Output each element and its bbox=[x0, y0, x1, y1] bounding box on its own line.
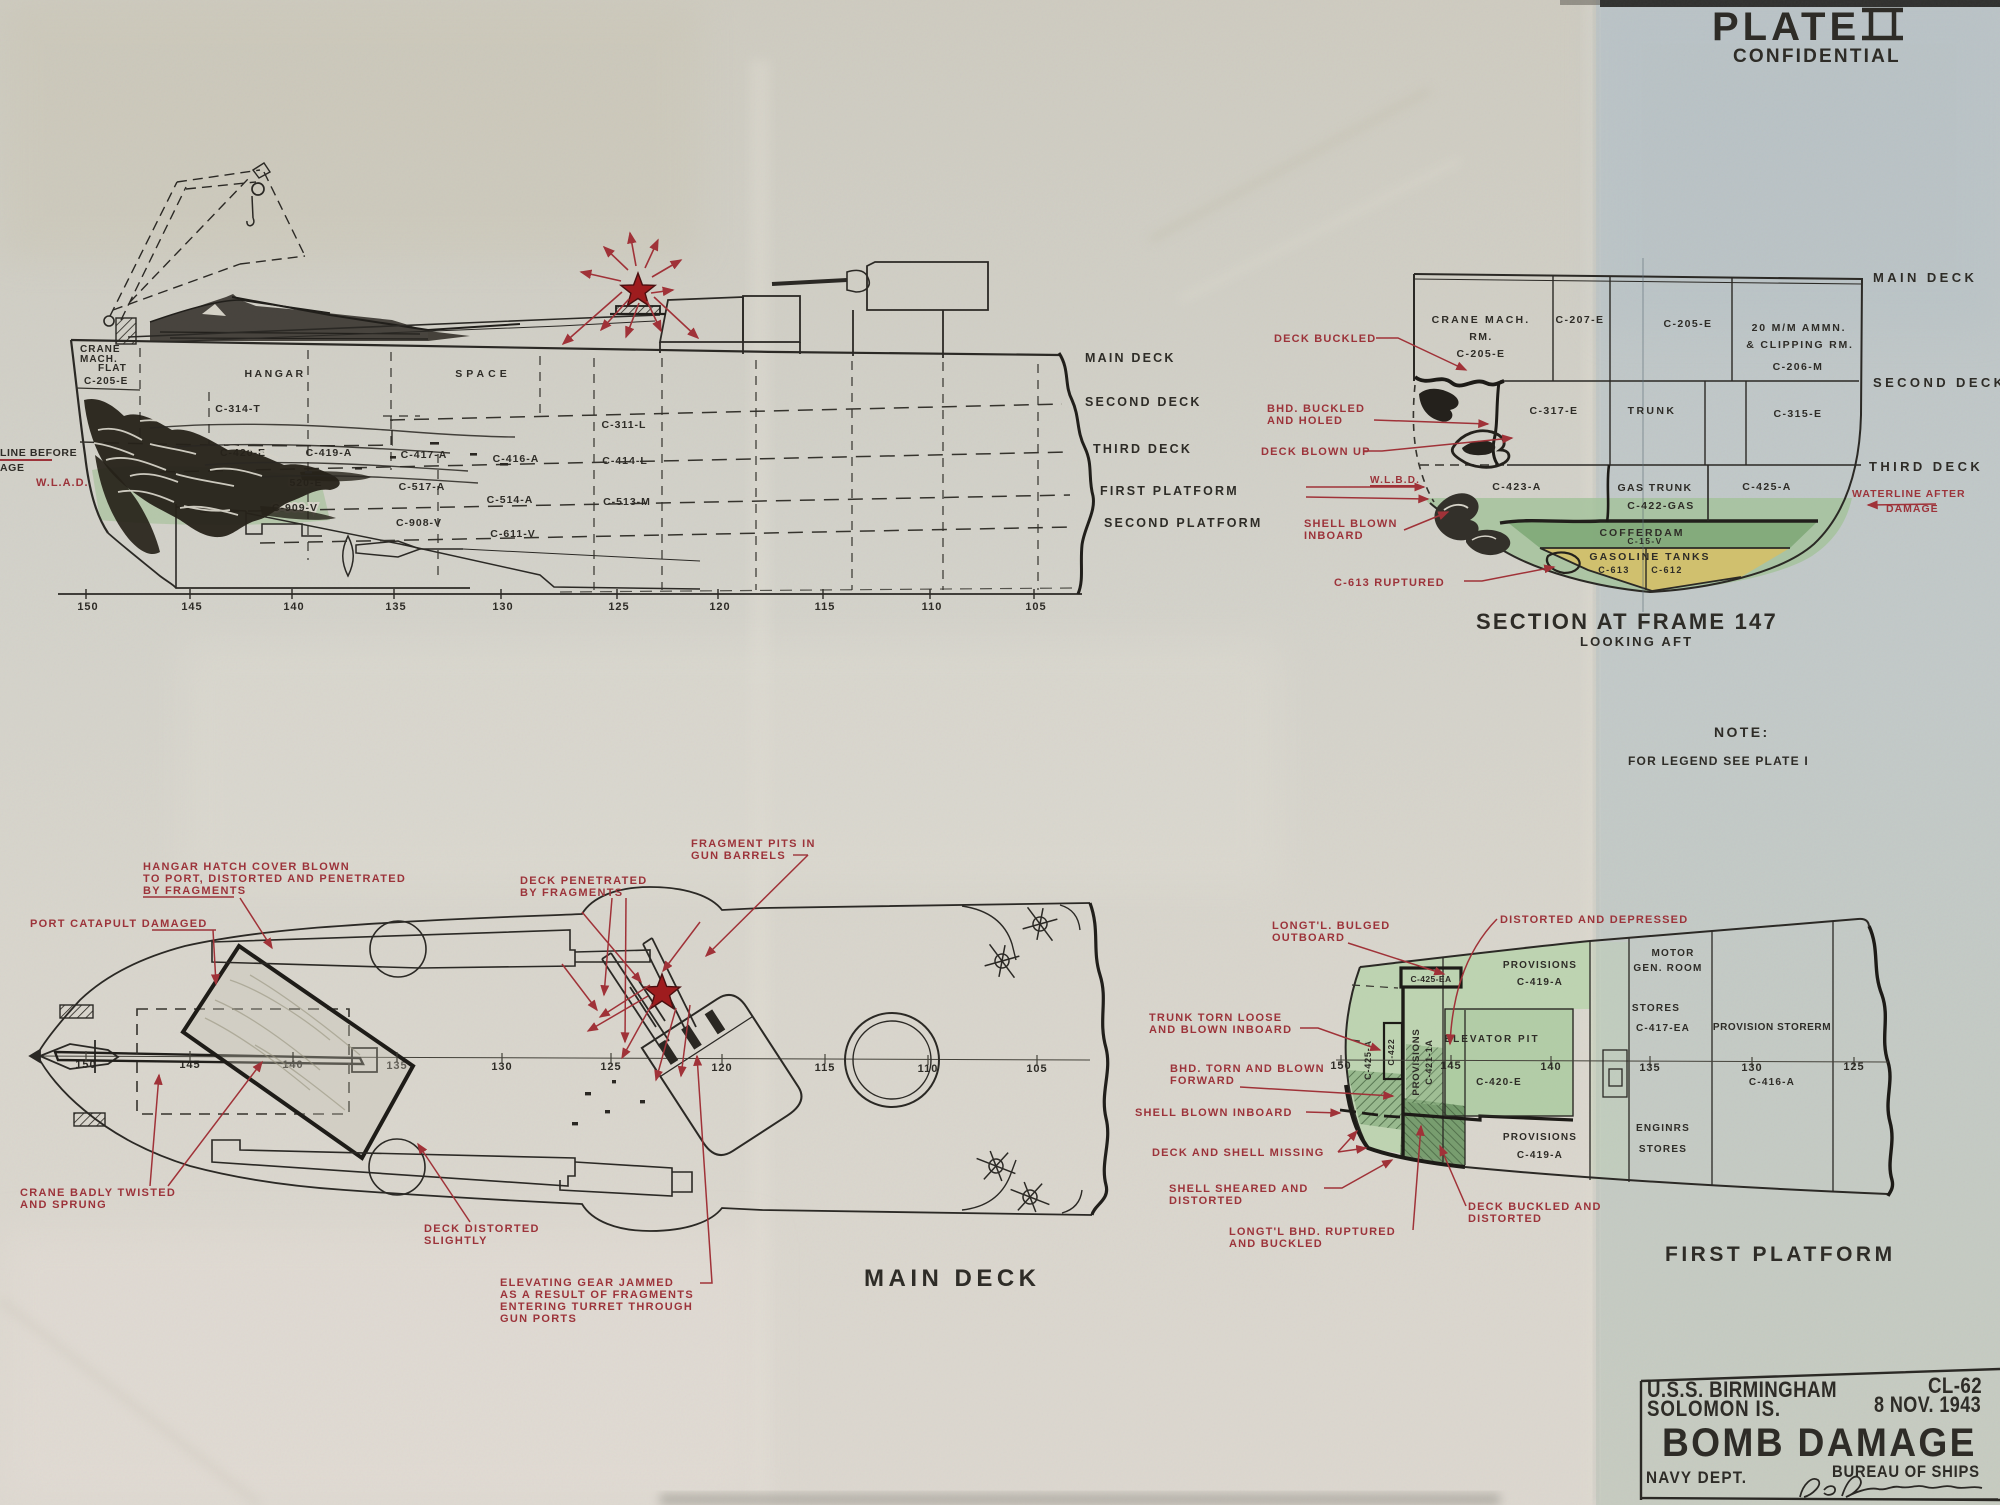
svg-text:DECK AND SHELL MISSING: DECK AND SHELL MISSING bbox=[1152, 1147, 1324, 1159]
svg-text:140: 140 bbox=[283, 601, 304, 613]
svg-text:C-311-L: C-311-L bbox=[602, 419, 647, 431]
svg-text:20 M/M AMMN.: 20 M/M AMMN. bbox=[1752, 322, 1847, 334]
svg-text:C-416-A: C-416-A bbox=[493, 453, 540, 465]
svg-text:SECOND DECK: SECOND DECK bbox=[1085, 395, 1202, 409]
svg-text:SECOND DECK: SECOND DECK bbox=[1873, 375, 2000, 390]
svg-text:C-423-A: C-423-A bbox=[1492, 481, 1541, 493]
svg-text:AND SPRUNG: AND SPRUNG bbox=[20, 1199, 107, 1211]
svg-text:C-517-A: C-517-A bbox=[399, 481, 446, 493]
svg-text:145: 145 bbox=[181, 601, 202, 613]
svg-text:125: 125 bbox=[608, 601, 629, 613]
svg-text:FRAGMENT PITS IN: FRAGMENT PITS IN bbox=[691, 838, 816, 850]
svg-text:W.L.A.D.: W.L.A.D. bbox=[36, 477, 89, 489]
svg-text:TRUNK TORN LOOSE: TRUNK TORN LOOSE bbox=[1149, 1012, 1282, 1024]
svg-text:FIRST PLATFORM: FIRST PLATFORM bbox=[1100, 484, 1239, 498]
svg-text:C-15-V: C-15-V bbox=[1627, 536, 1662, 546]
svg-text:HANGAR HATCH COVER BLOWN: HANGAR HATCH COVER BLOWN bbox=[143, 861, 350, 873]
svg-text:BY FRAGMENTS: BY FRAGMENTS bbox=[143, 885, 246, 897]
svg-text:PORT CATAPULT DAMAGED: PORT CATAPULT DAMAGED bbox=[30, 918, 208, 930]
svg-text:C-613 RUPTURED: C-613 RUPTURED bbox=[1334, 577, 1445, 589]
svg-text:SHELL SHEARED AND: SHELL SHEARED AND bbox=[1169, 1183, 1309, 1195]
svg-text:PROVISIONS: PROVISIONS bbox=[1503, 1132, 1577, 1143]
svg-text:140: 140 bbox=[1540, 1061, 1561, 1073]
svg-text:DECK BLOWN UP: DECK BLOWN UP bbox=[1261, 446, 1371, 458]
svg-text:120: 120 bbox=[709, 601, 730, 613]
svg-text:C-425-EA: C-425-EA bbox=[1411, 974, 1452, 984]
svg-text:DECK BUCKLED AND: DECK BUCKLED AND bbox=[1468, 1201, 1602, 1213]
svg-text:STORES: STORES bbox=[1639, 1144, 1687, 1155]
svg-text:130: 130 bbox=[492, 601, 513, 613]
svg-text:GAS TRUNK: GAS TRUNK bbox=[1617, 482, 1692, 494]
svg-text:AND HOLED: AND HOLED bbox=[1267, 415, 1343, 427]
svg-text:NOTE:: NOTE: bbox=[1714, 724, 1770, 740]
svg-text:DISTORTED: DISTORTED bbox=[1169, 1195, 1243, 1207]
svg-text:C-514-A: C-514-A bbox=[487, 494, 534, 506]
svg-text:LOOKING AFT: LOOKING AFT bbox=[1580, 634, 1693, 649]
svg-text:NAVY DEPT.: NAVY DEPT. bbox=[1646, 1468, 1747, 1487]
svg-text:C-205-E: C-205-E bbox=[1664, 318, 1713, 330]
svg-text:C-613: C-613 bbox=[1598, 565, 1630, 575]
svg-text:BOMB DAMAGE: BOMB DAMAGE bbox=[1662, 1421, 1977, 1466]
svg-text:C-205-E: C-205-E bbox=[1457, 348, 1506, 360]
svg-text:DISTORTED AND DEPRESSED: DISTORTED AND DEPRESSED bbox=[1500, 914, 1688, 926]
svg-text:125: 125 bbox=[1843, 1061, 1864, 1073]
svg-text:W.L.B.D.: W.L.B.D. bbox=[1370, 475, 1420, 486]
svg-text:C-317-E: C-317-E bbox=[1530, 405, 1579, 417]
svg-text:SHELL BLOWN: SHELL BLOWN bbox=[1304, 518, 1398, 530]
svg-text:SECTION AT FRAME 147: SECTION AT FRAME 147 bbox=[1476, 609, 1778, 634]
svg-text:AS A RESULT OF FRAGMENTS: AS A RESULT OF FRAGMENTS bbox=[500, 1289, 694, 1301]
svg-text:MAIN DECK: MAIN DECK bbox=[1873, 270, 1977, 285]
svg-text:C-416-A: C-416-A bbox=[1749, 1077, 1795, 1088]
svg-text:C-422: C-422 bbox=[1386, 1038, 1396, 1065]
svg-text:CRANE MACH.: CRANE MACH. bbox=[1432, 314, 1531, 326]
svg-text:SECOND PLATFORM: SECOND PLATFORM bbox=[1104, 516, 1262, 530]
svg-text:LONGT'L. BULGED: LONGT'L. BULGED bbox=[1272, 920, 1390, 932]
svg-text:LINE BEFORE: LINE BEFORE bbox=[0, 447, 77, 459]
svg-text:AND BLOWN INBOARD: AND BLOWN INBOARD bbox=[1149, 1024, 1292, 1036]
svg-text:PLATE: PLATE bbox=[1712, 5, 1860, 49]
svg-text:C-421-1A: C-421-1A bbox=[1424, 1039, 1434, 1084]
svg-text:CRANE BADLY TWISTED: CRANE BADLY TWISTED bbox=[20, 1187, 176, 1199]
svg-text:STORES: STORES bbox=[1632, 1003, 1680, 1014]
svg-text:BUREAU OF SHIPS: BUREAU OF SHIPS bbox=[1832, 1463, 1980, 1481]
svg-text:110: 110 bbox=[922, 601, 943, 613]
svg-text:MOTOR: MOTOR bbox=[1651, 948, 1694, 959]
svg-text:8 NOV. 1943: 8 NOV. 1943 bbox=[1874, 1393, 1981, 1417]
svg-text:LONGT'L BHD. RUPTURED: LONGT'L BHD. RUPTURED bbox=[1229, 1226, 1396, 1238]
svg-text:C-422-GAS: C-422-GAS bbox=[1627, 500, 1694, 512]
svg-text:C-612: C-612 bbox=[1651, 565, 1683, 575]
svg-text:TO PORT, DISTORTED AND PENETRA: TO PORT, DISTORTED AND PENETRATED bbox=[143, 873, 406, 885]
svg-text:AGE: AGE bbox=[0, 462, 25, 474]
svg-text:GUN PORTS: GUN PORTS bbox=[500, 1313, 577, 1325]
svg-text:OUTBOARD: OUTBOARD bbox=[1272, 932, 1345, 944]
svg-text:C-419-A: C-419-A bbox=[1517, 1150, 1563, 1161]
svg-text:CONFIDENTIAL: CONFIDENTIAL bbox=[1733, 46, 1901, 67]
svg-text:C-425-A: C-425-A bbox=[1742, 481, 1791, 493]
svg-text:145: 145 bbox=[1440, 1060, 1461, 1072]
svg-text:135: 135 bbox=[385, 601, 406, 613]
svg-text:C-315-E: C-315-E bbox=[1774, 408, 1823, 420]
svg-text:C-206-M: C-206-M bbox=[1773, 361, 1824, 373]
svg-text:130: 130 bbox=[1741, 1062, 1762, 1074]
svg-text:C-908-V: C-908-V bbox=[396, 517, 442, 529]
svg-text:C-420-E: C-420-E bbox=[1476, 1077, 1522, 1088]
svg-text:INBOARD: INBOARD bbox=[1304, 530, 1364, 542]
svg-text:SOLOMON IS.: SOLOMON IS. bbox=[1647, 1398, 1781, 1422]
svg-text:C-419-A: C-419-A bbox=[1517, 977, 1563, 988]
svg-text:BHD. TORN AND BLOWN: BHD. TORN AND BLOWN bbox=[1170, 1063, 1325, 1075]
svg-text:ENGINRS: ENGINRS bbox=[1636, 1123, 1690, 1134]
svg-text:AND BUCKLED: AND BUCKLED bbox=[1229, 1238, 1323, 1250]
svg-text:115: 115 bbox=[815, 601, 836, 613]
svg-text:C-417-EA: C-417-EA bbox=[1636, 1023, 1690, 1034]
svg-text:BHD. BUCKLED: BHD. BUCKLED bbox=[1267, 403, 1365, 415]
svg-text:GASOLINE TANKS: GASOLINE TANKS bbox=[1589, 551, 1710, 563]
svg-text:C-205-E: C-205-E bbox=[84, 376, 128, 387]
svg-text:DECK PENETRATED: DECK PENETRATED bbox=[520, 875, 647, 887]
svg-text:HANGAR: HANGAR bbox=[244, 368, 305, 380]
svg-text:DECK BUCKLED: DECK BUCKLED bbox=[1274, 333, 1376, 345]
svg-text:WATERLINE AFTER: WATERLINE AFTER bbox=[1852, 488, 1966, 500]
svg-text:BY FRAGMENTS: BY FRAGMENTS bbox=[520, 887, 623, 899]
svg-text:DISTORTED: DISTORTED bbox=[1468, 1213, 1542, 1225]
svg-text:135: 135 bbox=[1639, 1062, 1660, 1074]
svg-text:C-419-A: C-419-A bbox=[306, 447, 353, 459]
svg-text:FIRST PLATFORM: FIRST PLATFORM bbox=[1665, 1243, 1896, 1266]
svg-text:FOR LEGEND SEE PLATE I: FOR LEGEND SEE PLATE I bbox=[1628, 754, 1809, 768]
svg-text:SPACE: SPACE bbox=[455, 368, 510, 380]
svg-text:MAIN DECK: MAIN DECK bbox=[1085, 351, 1176, 365]
svg-text:150: 150 bbox=[1330, 1060, 1351, 1072]
svg-text:C-513-M: C-513-M bbox=[603, 496, 651, 508]
svg-text:ELEVATOR PIT: ELEVATOR PIT bbox=[1444, 1034, 1539, 1045]
svg-text:C-207-E: C-207-E bbox=[1556, 314, 1605, 326]
svg-text:105: 105 bbox=[1025, 601, 1046, 613]
svg-text:& CLIPPING RM.: & CLIPPING RM. bbox=[1746, 339, 1853, 351]
svg-text:C-314-T: C-314-T bbox=[215, 403, 261, 415]
svg-text:C-414-L: C-414-L bbox=[602, 455, 648, 467]
svg-text:RM.: RM. bbox=[1469, 331, 1492, 343]
svg-text:150: 150 bbox=[77, 601, 98, 613]
svg-text:DECK DISTORTED: DECK DISTORTED bbox=[424, 1223, 540, 1235]
svg-text:PROVISIONS: PROVISIONS bbox=[1503, 960, 1577, 971]
svg-text:FORWARD: FORWARD bbox=[1170, 1075, 1235, 1087]
svg-text:PROVISIONS: PROVISIONS bbox=[1411, 1028, 1422, 1095]
svg-text:TRUNK: TRUNK bbox=[1628, 405, 1677, 417]
svg-text:MAIN DECK: MAIN DECK bbox=[864, 1265, 1041, 1292]
svg-text:SHELL BLOWN INBOARD: SHELL BLOWN INBOARD bbox=[1135, 1107, 1293, 1119]
svg-text:GUN BARRELS: GUN BARRELS bbox=[691, 850, 786, 862]
svg-text:C-611-V: C-611-V bbox=[490, 528, 536, 540]
svg-text:PROVISION STORERM: PROVISION STORERM bbox=[1713, 1022, 1831, 1033]
svg-text:FLAT: FLAT bbox=[98, 363, 127, 374]
svg-text:THIRD DECK: THIRD DECK bbox=[1869, 459, 1983, 474]
svg-text:GEN. ROOM: GEN. ROOM bbox=[1633, 963, 1702, 974]
svg-text:SLIGHTLY: SLIGHTLY bbox=[424, 1235, 488, 1247]
svg-text:ENTERING TURRET THROUGH: ENTERING TURRET THROUGH bbox=[500, 1301, 693, 1313]
svg-text:ELEVATING GEAR JAMMED: ELEVATING GEAR JAMMED bbox=[500, 1277, 674, 1289]
svg-text:THIRD DECK: THIRD DECK bbox=[1093, 442, 1192, 456]
